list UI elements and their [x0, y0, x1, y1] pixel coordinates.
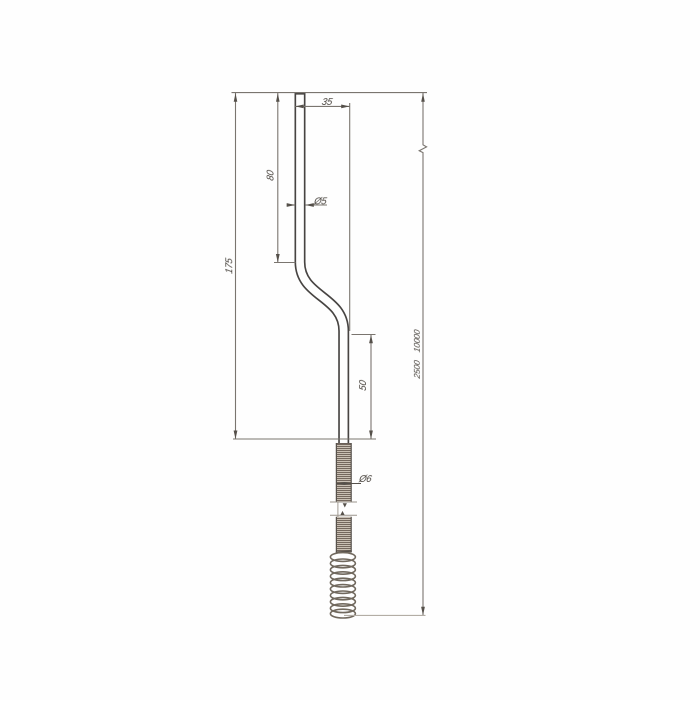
svg-text:80: 80 [266, 169, 277, 182]
svg-text:250010000: 250010000 [412, 328, 422, 380]
svg-text:Ø5: Ø5 [312, 196, 328, 207]
svg-text:50: 50 [358, 379, 369, 392]
svg-text:Ø6: Ø6 [357, 474, 373, 485]
svg-text:175: 175 [224, 257, 235, 275]
